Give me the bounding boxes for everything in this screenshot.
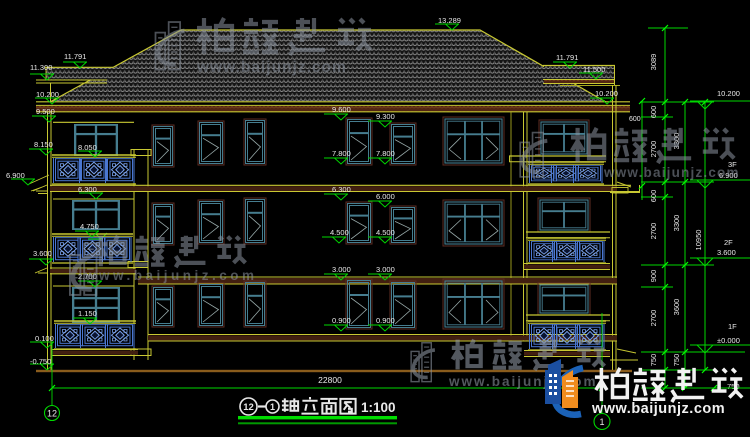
svg-text:8.050: 8.050	[78, 143, 97, 152]
svg-text:1:100: 1:100	[361, 400, 396, 415]
svg-text:22800: 22800	[318, 375, 342, 385]
svg-text:3300: 3300	[672, 215, 681, 232]
svg-text:750: 750	[649, 354, 658, 367]
svg-text:4.500: 4.500	[376, 228, 395, 237]
svg-text:11.300: 11.300	[30, 63, 52, 72]
svg-text:-0.750: -0.750	[30, 357, 51, 366]
svg-text:1: 1	[270, 402, 275, 412]
svg-text:9.500: 9.500	[36, 107, 55, 116]
svg-text:3.600: 3.600	[33, 249, 52, 258]
svg-text:0.100: 0.100	[35, 334, 54, 343]
svg-text:10.200: 10.200	[595, 89, 618, 98]
svg-text:3.000: 3.000	[332, 265, 351, 274]
svg-text:6.300: 6.300	[332, 185, 351, 194]
svg-text:3.600: 3.600	[717, 248, 736, 257]
svg-text:7.800: 7.800	[376, 149, 395, 158]
svg-text:1: 1	[599, 417, 604, 427]
svg-text:3.000: 3.000	[376, 265, 395, 274]
svg-text:www.baijunjz.com: www.baijunjz.com	[603, 165, 740, 180]
svg-text:8.150: 8.150	[34, 140, 53, 149]
svg-text:600: 600	[629, 116, 641, 123]
svg-text:3600: 3600	[672, 299, 681, 316]
svg-text:11.791: 11.791	[556, 53, 578, 62]
svg-text:900: 900	[649, 270, 658, 283]
svg-text:2700: 2700	[649, 223, 658, 240]
svg-text:10950: 10950	[694, 230, 703, 251]
svg-text:11.500: 11.500	[583, 65, 605, 74]
svg-text:0.900: 0.900	[376, 316, 395, 325]
svg-text:3089: 3089	[649, 54, 658, 71]
svg-text:±0.000: ±0.000	[717, 336, 740, 345]
svg-text:1F: 1F	[728, 322, 737, 331]
svg-text:0.900: 0.900	[332, 316, 351, 325]
svg-text:12: 12	[47, 409, 57, 419]
svg-text:www.baijunjz.com: www.baijunjz.com	[84, 268, 258, 283]
svg-text:6.900: 6.900	[6, 171, 25, 180]
svg-text:10.200: 10.200	[717, 89, 740, 98]
svg-text:2700: 2700	[649, 141, 658, 158]
svg-text:750: 750	[727, 382, 740, 391]
svg-text:9.300: 9.300	[376, 112, 395, 121]
svg-text:7.800: 7.800	[332, 149, 351, 158]
svg-text:www.baijunjz.com: www.baijunjz.com	[591, 401, 725, 417]
svg-text:2700: 2700	[649, 310, 658, 327]
svg-text:9.600: 9.600	[332, 105, 351, 114]
svg-text:12: 12	[243, 402, 254, 413]
svg-text:www.baijunjz.com: www.baijunjz.com	[196, 59, 347, 76]
svg-text:13.289: 13.289	[438, 16, 461, 25]
svg-text:750: 750	[672, 354, 681, 367]
svg-text:4.750: 4.750	[80, 222, 99, 231]
svg-text:600: 600	[649, 190, 658, 203]
svg-text:6.300: 6.300	[78, 185, 97, 194]
svg-text:1.150: 1.150	[78, 309, 97, 318]
svg-text:10.200: 10.200	[36, 90, 59, 99]
svg-text:2F: 2F	[724, 238, 733, 247]
svg-text:6.000: 6.000	[376, 192, 395, 201]
svg-text:11.791: 11.791	[64, 52, 86, 61]
svg-text:600: 600	[649, 106, 658, 119]
svg-text:4.500: 4.500	[330, 228, 349, 237]
